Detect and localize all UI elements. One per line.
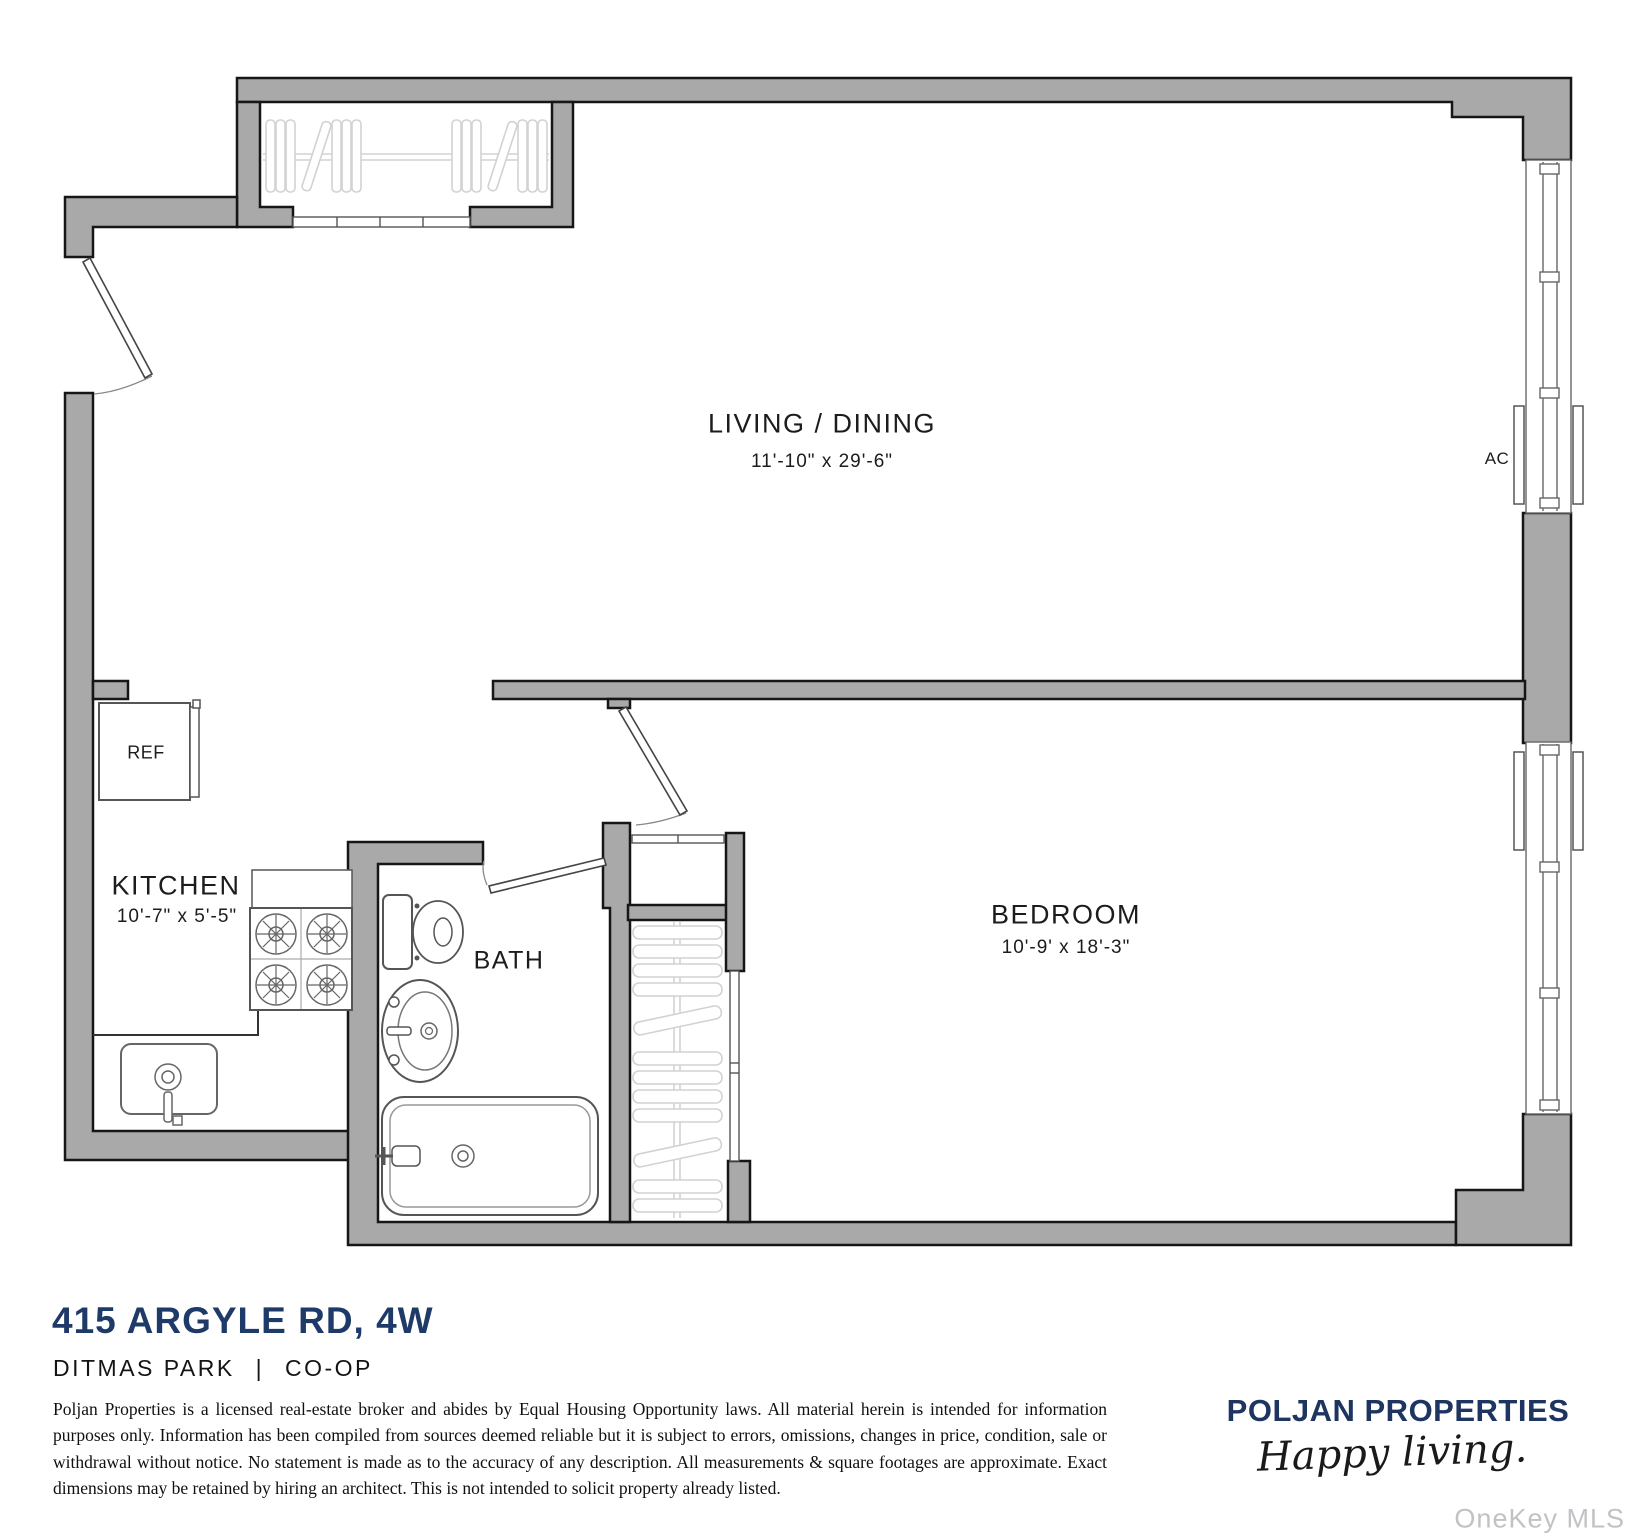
kitchen-dimensions: 10'-7" x 5'-5" (117, 906, 237, 928)
closet-compartment-door-icon (632, 835, 724, 843)
vanity-sink-icon (382, 980, 458, 1082)
bath-label: BATH (474, 947, 545, 976)
entry-door-icon (83, 258, 152, 394)
refrigerator-label: REF (127, 743, 165, 764)
window-living-icon (1526, 160, 1571, 513)
window-bedroom-icon (1526, 742, 1571, 1114)
living-dining-dimensions: 11'-10" x 29'-6" (751, 451, 893, 473)
walls (65, 78, 1571, 1245)
listing-address: 415 ARGYLE RD, 4W (52, 1300, 434, 1342)
listing-type: CO-OP (285, 1355, 373, 1382)
wall-top (237, 78, 1571, 160)
toilet-icon (383, 895, 463, 969)
wall-closet-stub (728, 1161, 750, 1222)
floorplan-page: LIVING / DINING 11'-10" x 29'-6" KITCHEN… (0, 0, 1637, 1536)
wall-divider-stub (93, 681, 128, 699)
ac-label: AC (1485, 449, 1510, 469)
bathtub-icon (375, 1097, 598, 1215)
kitchen-sink-icon (121, 1044, 217, 1125)
bedroom-door-icon (619, 707, 687, 825)
bedroom-label: BEDROOM (991, 900, 1141, 931)
wall-entry (65, 197, 237, 257)
brand-tagline: Happy living. (1256, 1425, 1528, 1480)
mls-watermark: OneKey MLS (1454, 1504, 1625, 1535)
listing-subtitle: DITMAS PARK | CO-OP (53, 1355, 373, 1382)
wall-right-mid (1523, 513, 1571, 743)
listing-neighborhood: DITMAS PARK (53, 1355, 235, 1382)
stove-icon (250, 908, 352, 1010)
closet-door-top-icon (293, 217, 470, 227)
wall-closet-band (628, 905, 727, 920)
subtitle-separator: | (244, 1355, 276, 1382)
brand-name: POLJAN PROPERTIES (1227, 1393, 1570, 1429)
wall-closet-col (726, 833, 744, 971)
wall-bottom-right-step (1456, 1114, 1571, 1245)
closet-hangers-icon (263, 120, 549, 192)
bedroom-dimensions: 10'-9' x 18'-3" (1002, 937, 1131, 959)
living-dining-label: LIVING / DINING (708, 409, 936, 440)
closet-shelves-icon (633, 922, 723, 1218)
bedroom-closet-door-icon (730, 971, 739, 1161)
legal-disclaimer: Poljan Properties is a licensed real-est… (53, 1396, 1107, 1501)
bath-door-icon (483, 858, 606, 893)
wall-divider-main (493, 681, 1525, 699)
kitchen-label: KITCHEN (111, 871, 240, 902)
wall-bath-right (603, 823, 630, 1222)
